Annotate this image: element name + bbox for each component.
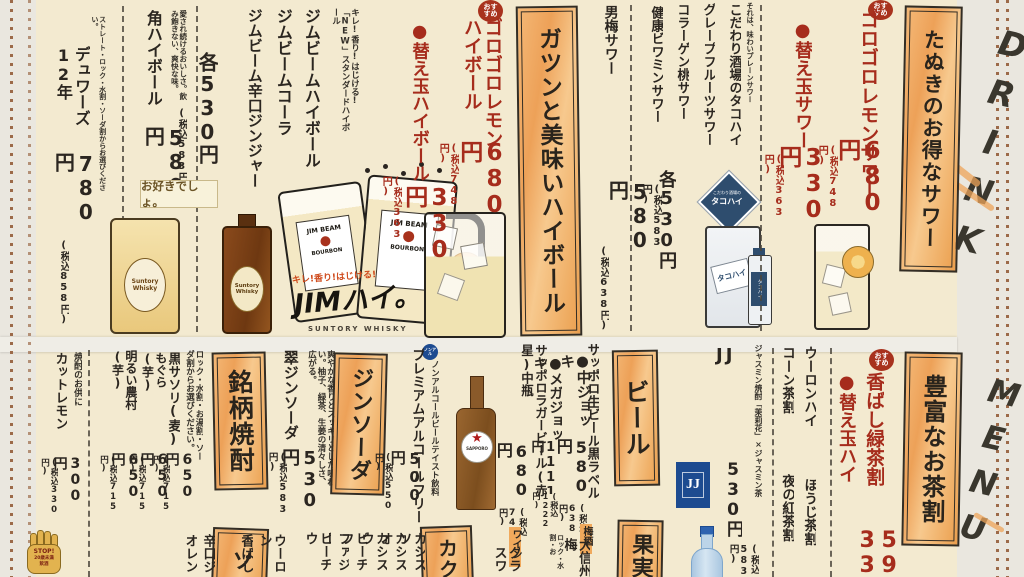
cocktail-section-header: カク [420, 525, 474, 577]
jimbeam-seal [320, 236, 331, 247]
stop-text-3: 飲酒 [28, 561, 60, 567]
suntory-bottle: Suntory Whisky [222, 214, 270, 332]
takohai-badge: こだわり酒場の タコハイ [703, 176, 751, 224]
stop-text-1: STOP! [28, 548, 60, 555]
ocha-f2-name: ●替え玉ハイ [836, 372, 856, 490]
takohai-group-tax: (税込583円) [640, 184, 662, 268]
takohai-badge-inner: こだわり酒場の タコハイ [703, 190, 751, 207]
highball-item2-price: 330円 [400, 185, 452, 277]
takohai-item-3: コラーゲン桃サワー [674, 3, 689, 125]
tea-item-2: コーン茶割 [779, 346, 794, 432]
shochu-item2-name: もぐら(芋) [140, 352, 167, 424]
osusume-badge-highball-text: おすすめ [483, 4, 499, 19]
jj-title: JJ [716, 346, 735, 366]
dewars-tax: (税込858円) [58, 240, 69, 330]
cocktail-section-header-text: カク [436, 538, 457, 577]
jj-bottle [688, 526, 722, 577]
shochu-item1-name: 黒サソリ(麦) [165, 352, 180, 450]
soft-item-2: 香ばし [238, 534, 253, 577]
highball-section-header: ガツンと美味いハイボール [516, 6, 583, 337]
ume-note: ロック・水割・お [548, 534, 564, 577]
cut-lemon-name: カットレモン [52, 352, 67, 434]
soft-item-1: ウーロン [256, 534, 285, 577]
dewars-price: 780円 [52, 152, 97, 240]
takohai-glass-label-text: タコハイ [716, 268, 747, 284]
suntory-mug-label-text: Suntory Whisky [125, 278, 165, 292]
tanuki-section-header: たぬきのお得なサワー [899, 5, 963, 272]
suntory-mug: Suntory Whisky [110, 218, 180, 334]
separator-7 [830, 348, 832, 577]
nonal-badge: ノンアル [422, 344, 438, 360]
osuki-label: お好きでしょ。 [140, 180, 218, 208]
separator-3 [630, 5, 632, 331]
sapporo-bottle-body: ★ SAPPORO [456, 408, 496, 510]
gin-name: 翠ジンソーダ [282, 350, 299, 450]
beer-free-tax: (税込550円) [373, 453, 393, 517]
cut-lemon-note: 焼酎のお供に [72, 352, 82, 422]
tanuki-section-header-text: たぬきのお得なサワー [918, 29, 944, 249]
tanuki-item2-tax: (税込363円) [762, 154, 784, 238]
jj-tax: (税込583円) [727, 544, 759, 577]
kaku-name: 角ハイボール [144, 10, 162, 122]
suntory-bottle-label-text: Suntory Whisky [231, 283, 263, 295]
stop-hand-icon: STOP! 20歳未満 飲酒 [26, 533, 64, 577]
separator-5 [88, 350, 90, 577]
sapporo-bottle: ★ SAPPORO [456, 376, 496, 510]
ocha-section-header: 豊富なお茶割 [901, 352, 962, 547]
beer-opt2-price: 1111円 [528, 440, 557, 494]
jim-item-3: ジムビーム辛口ジンジャー [246, 8, 263, 200]
ocha-f1-price: 590 [876, 528, 901, 577]
shochu-section-header: 銘柄焼酎 [212, 351, 269, 490]
takohai-item-1: こだわり酒場のタコハイ [726, 3, 741, 155]
beer-section-header: ビール [612, 350, 660, 487]
kajitsu-section-header: 果実 [616, 520, 663, 577]
tanuki-item1-price: 680円 [833, 138, 885, 230]
suntory-mug-label: Suntory Whisky [124, 258, 166, 312]
beer-lager-price: 680円 [494, 442, 530, 508]
beer-section-header-text: ビール [623, 379, 649, 457]
kaku-note: 愛され続けるおいしさ。飲み飽きない、爽快な味。 [170, 10, 187, 106]
jim-item-2: ジムビームコーラ [274, 8, 292, 148]
jim-group-price: 各530円 [196, 52, 218, 187]
ocha-section-header-text: 豊富なお茶割 [919, 374, 946, 524]
wine-item: グラスワ [491, 546, 520, 577]
shochu-item1-tax: (税込715円) [151, 455, 170, 519]
nonal-badge-text: ノンアル [424, 348, 436, 356]
jimhai-caption: SUNTORY WHISKY [308, 326, 408, 334]
jj-price: 530円 [723, 460, 742, 544]
takohai-badge-big-text: タコハイ [703, 196, 751, 207]
tea-item-3: ほうじ茶割 [801, 478, 816, 558]
frame-dashed-line-left [28, 0, 31, 577]
osusume-badge-ocha-text: おすすめ [874, 353, 890, 368]
jj-bottle-body [691, 548, 723, 577]
suntory-bottle-body: Suntory Whisky [222, 226, 272, 334]
menu-photo: DRINK MENU ストレート・ロック・水割・ソーダ割からお選びください。 デ… [0, 0, 1024, 577]
shochu-section-header-text: 銘柄焼酎 [226, 369, 253, 474]
gin-section-header-text: ジンソーダ [346, 366, 371, 482]
lemon-slice [842, 246, 874, 278]
highball-item2-name: ●替え玉ハイボール [409, 22, 429, 190]
tea-item-4: 夜の紅茶割 [779, 474, 794, 564]
beer-draft-name: サッポロ生ビール黒ラベル [584, 343, 599, 505]
ice-cube-3 [437, 273, 465, 301]
umeboshi-tax: (税込638円) [598, 246, 609, 334]
jim-item-1: ジムビームハイボール [302, 8, 320, 180]
shochu-item3-tax: (税込715円) [98, 455, 117, 519]
cut-lemon-tax: (税込330円) [39, 458, 58, 522]
dewars-name: デュワーズ12年 [54, 46, 90, 154]
highball-item1-price: 680円 [455, 140, 507, 240]
highball-item1-name: ゴロゴロレモンハイボール [450, 18, 502, 160]
splash-dots [365, 168, 370, 173]
osusume-badge-ocha: おすすめ [869, 349, 894, 371]
ume-item: 大信州梅 [561, 538, 590, 577]
takohai-item-2: グレープフルーツサワー [700, 3, 715, 153]
highball-item2-tax: (税込363円) [380, 176, 402, 260]
ocha-f2-price: 330 [854, 528, 879, 577]
jj-logo: JJ [676, 462, 710, 508]
takohai-bottle-label: タコハイ [751, 272, 767, 306]
kajitsu-section-header-text: 果実 [629, 533, 652, 577]
jim-note: キレ!香り!はじける!「NEW」スタンダードハイボール [330, 8, 359, 136]
bourbon-text: BOURBON [301, 246, 353, 259]
tanuki-item2-name: ●替え玉サワー [792, 20, 812, 160]
osuki-label-text: お好きでしょ。 [141, 178, 217, 210]
takohai-bottle: タコハイ [748, 248, 770, 324]
jj-desc: ジャスミン焼酎「茉莉花」×ジャスミン茶 [753, 344, 762, 504]
frame-dotted-line-left [10, 0, 13, 577]
stop-palm: STOP! 20歳未満 飲酒 [27, 544, 61, 574]
suntory-bottle-label: Suntory Whisky [230, 266, 264, 312]
ice-cube-2 [460, 242, 488, 270]
soft-item-4: 辛口ジ [200, 534, 215, 577]
shochu-item3-name: 明るい農村(芋) [110, 350, 137, 442]
umeboshi-name: 男梅サワー [602, 5, 618, 81]
beer-free-note: ノンアルコールビールテイスト飲料 [429, 360, 439, 506]
sapporo-label-text: SAPPORO [462, 446, 492, 451]
takohai-tagline: それは、味わいプレーンサワー [746, 2, 754, 106]
jimbeam-text: JIM BEAM [298, 222, 351, 237]
sapporo-star: ★ [462, 432, 492, 446]
shochu-item2-tax: (税込715円) [127, 455, 146, 519]
separator-6 [772, 348, 774, 577]
shochu-note: ロック・水割・お湯割・ソーダ割からお選びください。 [184, 350, 203, 468]
ocha-f1-name: 香ばし緑茶割 [863, 372, 884, 500]
jj-logo-text: JJ [682, 472, 704, 498]
tea-item-1: ウーロンハイ [801, 346, 816, 434]
beer-free-price: 500円 [389, 450, 423, 508]
lemon-sour-ice-2 [828, 292, 852, 316]
takohai-item-4: 健康ビワミンサワー [648, 6, 663, 128]
cocktail-item-6: ピーチウ [302, 532, 331, 577]
highball-section-header-text: ガツンと美味いハイボール [535, 27, 562, 315]
soft-item-5: オレン [182, 534, 197, 577]
sapporo-label: ★ SAPPORO [461, 431, 493, 463]
